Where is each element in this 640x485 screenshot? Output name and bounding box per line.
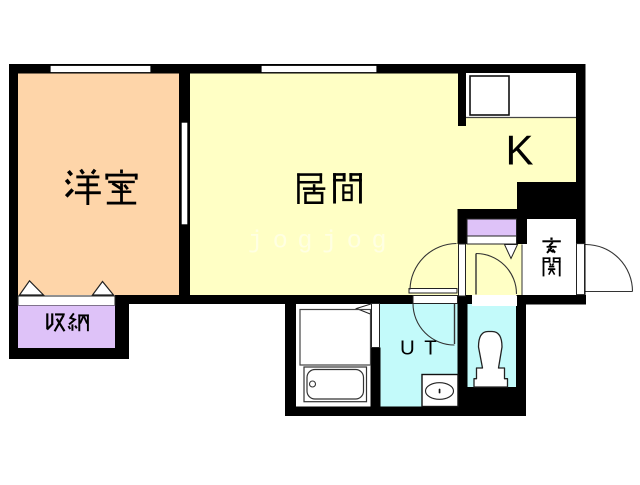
svg-text:UT: UT — [400, 337, 446, 360]
svg-text:K: K — [506, 126, 534, 173]
svg-text:jogjog: jogjog — [248, 227, 396, 256]
